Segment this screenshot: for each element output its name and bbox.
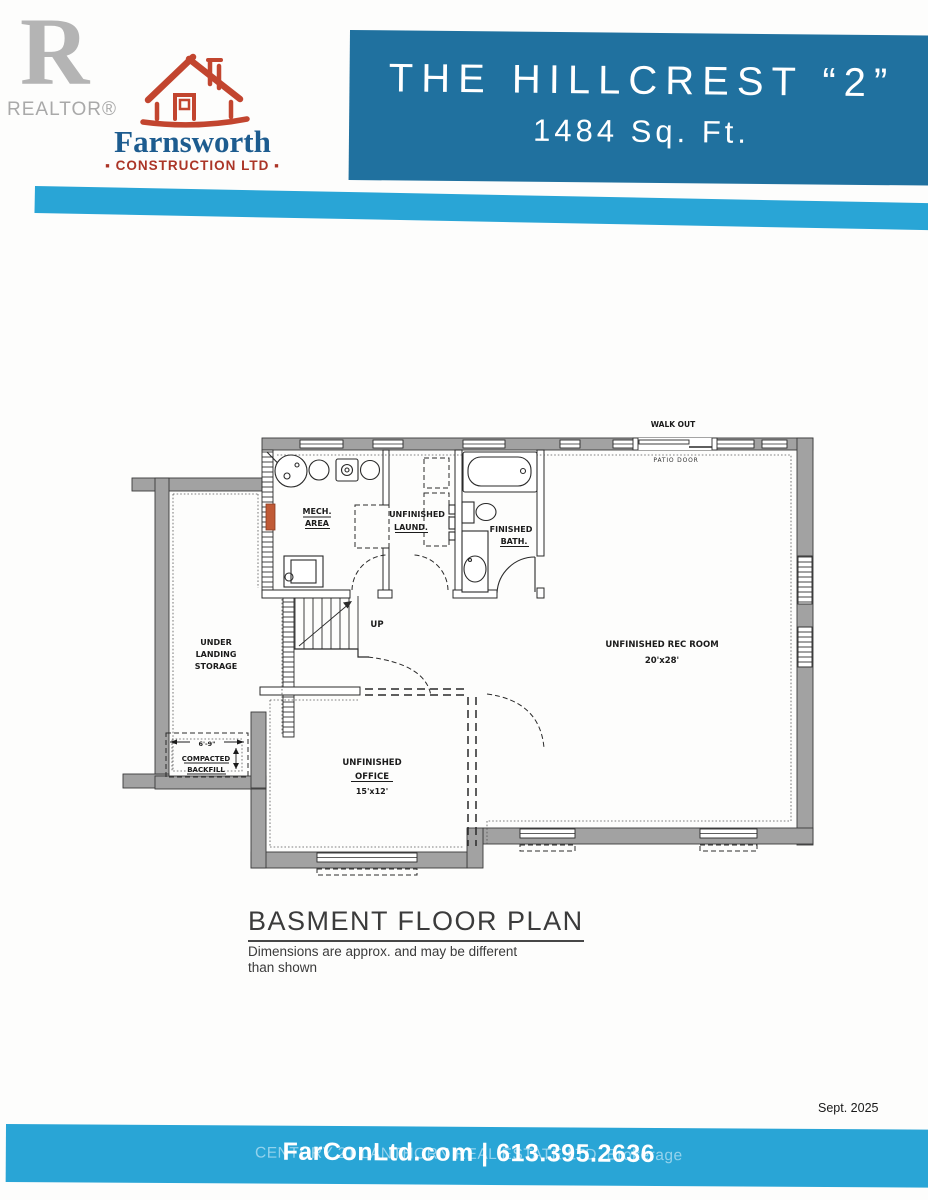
label-backfill-line2: BACKFILL	[187, 766, 225, 774]
plan-disclaimer: Dimensions are approx. and may be differ…	[248, 944, 517, 975]
floor-drain	[284, 556, 323, 587]
contact-text: FarConLtd.com | 613.395.2636	[6, 1136, 928, 1171]
disclaimer-line1: Dimensions are approx. and may be differ…	[248, 944, 517, 960]
model-sqft: 1484 Sq. Ft.	[349, 111, 928, 153]
label-backfill-line1: COMPACTED	[182, 755, 231, 763]
patio-door	[633, 438, 717, 450]
label-laundry-line1: UNFINISHED	[389, 510, 445, 519]
label-office-line1: UNFINISHED	[342, 758, 401, 768]
toilet	[462, 502, 474, 523]
label-laundry-line2: LAUND.	[394, 523, 428, 532]
label-backfill-dim: 6'-9"	[198, 740, 215, 748]
footer-stripe: CENTURY 21 LANTHORN REAL ESTATE LTD. Bro…	[6, 1124, 928, 1188]
label-mech-line1: MECH.	[302, 507, 331, 516]
label-mech-line2: AREA	[305, 519, 330, 528]
panel-marker	[266, 504, 275, 530]
scanned-floor-plan-page: R REALTOR® Farnsworth ▪ CONSTRUCTION LTD…	[0, 0, 928, 1200]
label-bath-line1: FINISHED	[490, 525, 533, 534]
label-office-line2: OFFICE	[355, 772, 389, 782]
model-name: THE HILLCREST “2”	[349, 56, 928, 107]
label-storage-line3: STORAGE	[195, 662, 237, 671]
model-banner: THE HILLCREST “2” 1484 Sq. Ft.	[349, 30, 928, 186]
label-storage-line2: LANDING	[196, 650, 237, 659]
label-patio-door: PATIO DOOR	[653, 457, 698, 464]
label-rec-room-line1: UNFINISHED REC ROOM	[605, 640, 718, 650]
plan-title: BASMENT FLOOR PLAN	[248, 906, 584, 942]
label-office-dim: 15'x12'	[356, 787, 388, 796]
label-storage-line1: UNDER	[200, 638, 231, 647]
label-walk-out: WALK OUT	[651, 420, 696, 429]
laundry-fixtures	[424, 458, 455, 546]
label-bath-line2: BATH.	[501, 537, 528, 546]
stairs	[294, 596, 369, 657]
disclaimer-line2: than shown	[248, 960, 517, 976]
door-swings	[267, 452, 544, 748]
date-label: Sept. 2025	[818, 1101, 878, 1115]
bath-fixtures	[462, 452, 537, 592]
label-up: UP	[370, 620, 383, 630]
label-rec-room-dim: 20'x28'	[645, 656, 679, 666]
